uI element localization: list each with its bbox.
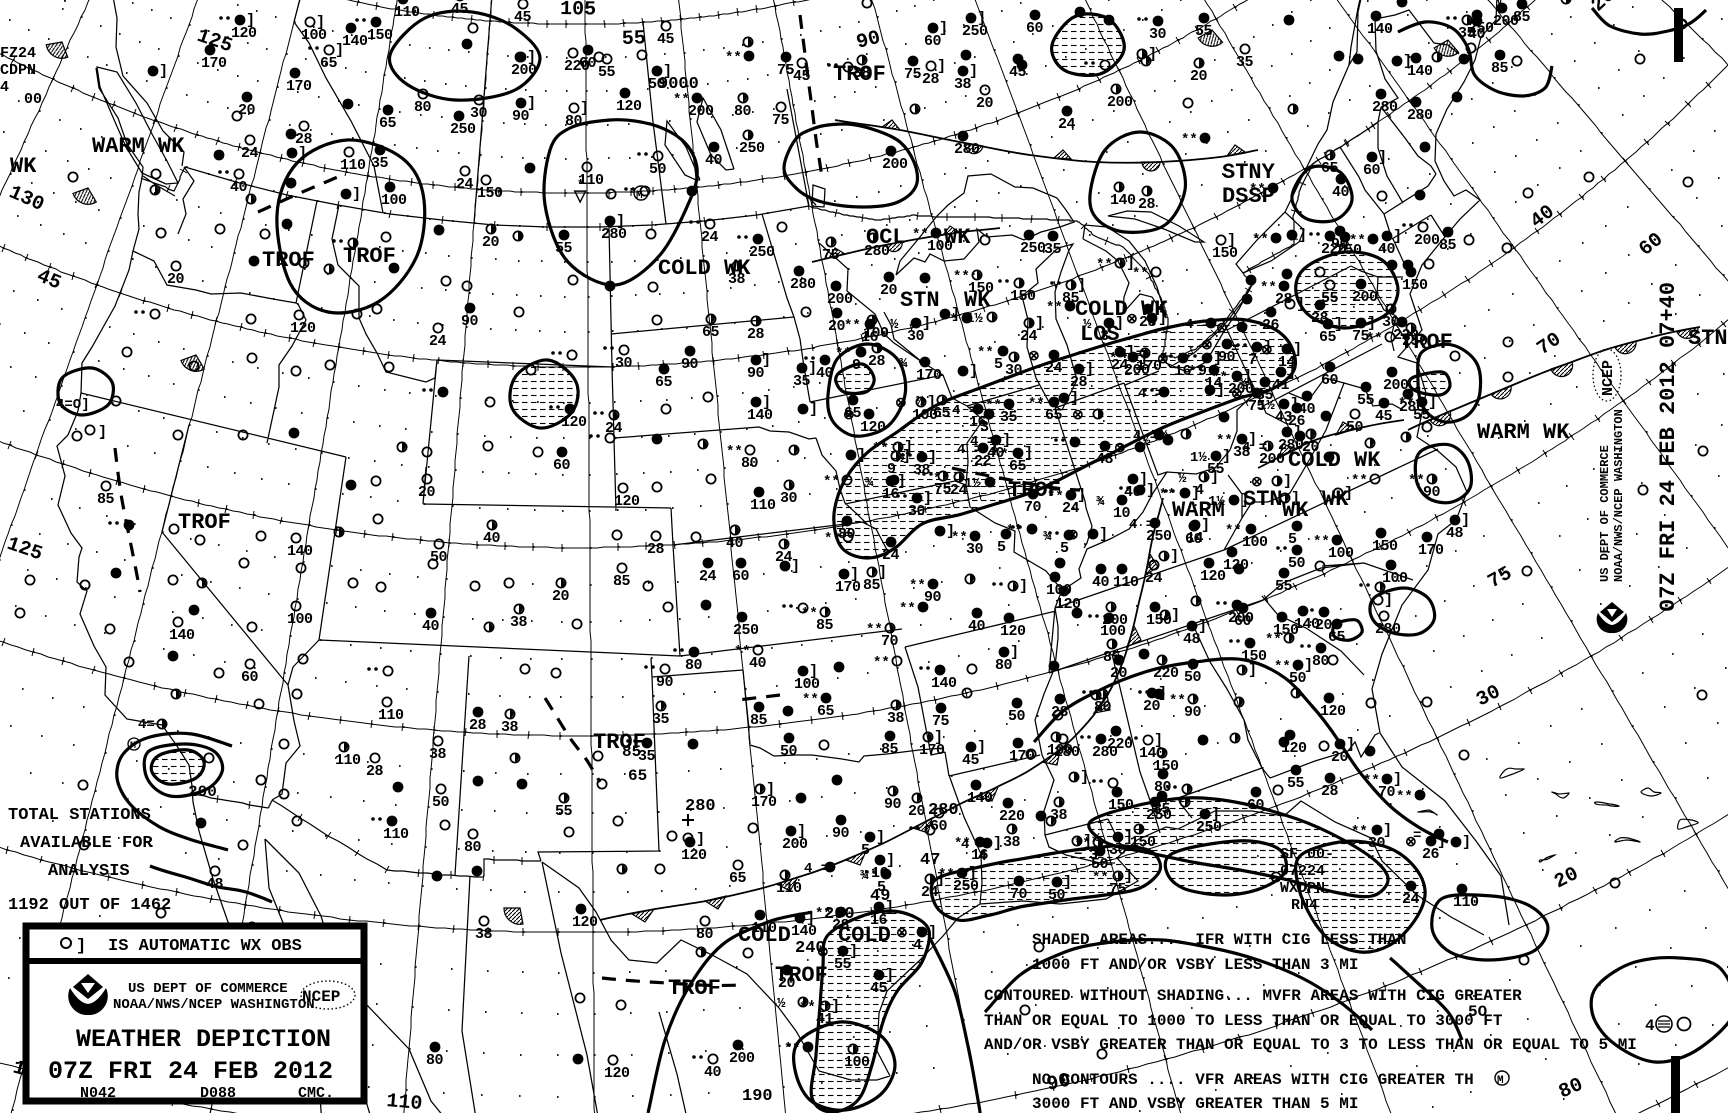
svg-text:80: 80 bbox=[734, 103, 752, 120]
svg-text:COLD WK: COLD WK bbox=[1288, 448, 1381, 473]
svg-text:]: ] bbox=[1293, 341, 1302, 358]
svg-text:**: ** bbox=[899, 601, 916, 617]
svg-text:50: 50 bbox=[1008, 708, 1026, 725]
svg-text:**: ** bbox=[938, 867, 955, 883]
svg-text:]: ] bbox=[1198, 618, 1207, 635]
svg-text:10: 10 bbox=[1113, 505, 1131, 522]
svg-text:85: 85 bbox=[1103, 649, 1121, 666]
svg-text:250: 250 bbox=[749, 244, 775, 261]
svg-text:4=O]: 4=O] bbox=[56, 397, 90, 413]
svg-text:100: 100 bbox=[1242, 534, 1268, 551]
svg-text:65: 65 bbox=[655, 374, 673, 391]
svg-text:]: ] bbox=[939, 20, 948, 37]
svg-text:⊗: ⊗ bbox=[1157, 352, 1169, 368]
svg-text:85: 85 bbox=[881, 741, 899, 758]
svg-text:]: ] bbox=[1461, 512, 1470, 529]
svg-text:105: 105 bbox=[560, 0, 596, 22]
svg-text:¾: ¾ bbox=[865, 475, 874, 491]
svg-text:65: 65 bbox=[933, 405, 951, 422]
svg-text:65: 65 bbox=[1045, 407, 1063, 424]
svg-text:WK: WK bbox=[1282, 498, 1309, 523]
svg-text:140: 140 bbox=[967, 790, 993, 807]
svg-text:75: 75 bbox=[777, 62, 795, 79]
svg-text:]: ] bbox=[1296, 296, 1305, 313]
svg-text:70: 70 bbox=[881, 633, 899, 650]
svg-text:]: ] bbox=[98, 424, 107, 441]
svg-text:140: 140 bbox=[287, 543, 313, 560]
svg-text:45: 45 bbox=[451, 1, 469, 18]
svg-text:AND/OR VSBY GREATER THAN OR EQ: AND/OR VSBY GREATER THAN OR EQUAL TO 3 T… bbox=[984, 1036, 1637, 1054]
svg-text:65: 65 bbox=[628, 767, 647, 785]
svg-text:90: 90 bbox=[1423, 484, 1441, 501]
svg-text:50: 50 bbox=[430, 549, 448, 566]
svg-text:55: 55 bbox=[555, 803, 573, 820]
svg-text:120: 120 bbox=[1000, 623, 1026, 640]
svg-text:**: ** bbox=[802, 692, 819, 708]
svg-text:100: 100 bbox=[1382, 570, 1408, 587]
svg-text:140: 140 bbox=[931, 675, 957, 692]
svg-text:24: 24 bbox=[701, 229, 719, 246]
svg-text:100: 100 bbox=[863, 325, 889, 342]
svg-text:150: 150 bbox=[1130, 834, 1156, 851]
svg-text:**: ** bbox=[1396, 789, 1413, 805]
svg-text:TROF: TROF bbox=[1400, 330, 1453, 355]
svg-text:50: 50 bbox=[1346, 419, 1364, 436]
svg-text:]: ] bbox=[526, 0, 535, 2]
svg-text:]: ] bbox=[806, 910, 815, 927]
svg-text:]: ] bbox=[857, 447, 866, 464]
svg-text:90: 90 bbox=[1218, 349, 1236, 366]
svg-text:NOAA/NWS/NCEP WASHINGTON: NOAA/NWS/NCEP WASHINGTON bbox=[113, 997, 315, 1013]
svg-text:75: 75 bbox=[932, 713, 950, 730]
svg-text:120: 120 bbox=[1320, 703, 1346, 720]
svg-text:75: 75 bbox=[904, 66, 922, 83]
svg-text:]: ] bbox=[766, 781, 775, 798]
svg-text:**: ** bbox=[1363, 773, 1380, 789]
svg-text:90: 90 bbox=[656, 674, 674, 691]
svg-text:30: 30 bbox=[1149, 26, 1167, 43]
svg-text:**: ** bbox=[873, 655, 890, 671]
svg-text:280: 280 bbox=[954, 141, 980, 158]
svg-text:65: 65 bbox=[702, 324, 720, 341]
svg-text:40: 40 bbox=[749, 655, 767, 672]
svg-text:TROF: TROF bbox=[668, 976, 721, 1001]
svg-text:20: 20 bbox=[238, 102, 256, 119]
svg-text:5: 5 bbox=[994, 356, 1003, 373]
svg-text:24: 24 bbox=[1145, 570, 1163, 587]
svg-text:80: 80 bbox=[696, 926, 714, 943]
svg-text:COLD: COLD bbox=[838, 923, 891, 948]
svg-text:TROF: TROF bbox=[262, 248, 315, 273]
svg-text:120: 120 bbox=[1055, 596, 1081, 613]
svg-text:]: ] bbox=[969, 363, 978, 380]
svg-text:55: 55 bbox=[1275, 578, 1293, 595]
svg-text:7: 7 bbox=[1248, 352, 1257, 369]
svg-text:TROF: TROF bbox=[833, 62, 886, 87]
svg-text:250: 250 bbox=[739, 140, 765, 157]
svg-text:9000: 9000 bbox=[658, 75, 699, 94]
svg-text:¾: ¾ bbox=[1096, 494, 1105, 510]
svg-text:50: 50 bbox=[1184, 669, 1202, 686]
svg-text:½: ½ bbox=[1178, 471, 1187, 487]
svg-text:170: 170 bbox=[1418, 542, 1444, 559]
svg-text:75: 75 bbox=[772, 112, 790, 129]
svg-text:]: ] bbox=[1170, 548, 1179, 565]
svg-text:]: ] bbox=[831, 998, 840, 1015]
svg-text:]: ] bbox=[1346, 736, 1355, 753]
svg-text:140: 140 bbox=[1367, 21, 1393, 38]
svg-text:]: ] bbox=[850, 566, 859, 583]
svg-text:D088: D088 bbox=[200, 1085, 236, 1102]
svg-text:]: ] bbox=[1384, 592, 1393, 609]
svg-text:45: 45 bbox=[793, 68, 811, 85]
svg-text:**: ** bbox=[866, 622, 883, 638]
svg-text:FZ24: FZ24 bbox=[0, 45, 36, 62]
svg-text:30: 30 bbox=[780, 490, 798, 507]
svg-text:**: ** bbox=[725, 50, 742, 66]
svg-text:90: 90 bbox=[832, 825, 850, 842]
svg-text:85: 85 bbox=[816, 617, 834, 634]
svg-text:CMC.: CMC. bbox=[298, 1085, 334, 1102]
svg-text:4 =: 4 = bbox=[1129, 517, 1154, 533]
svg-text:250: 250 bbox=[1336, 242, 1362, 259]
svg-text:]: ] bbox=[1290, 396, 1299, 413]
svg-text:5: 5 bbox=[861, 842, 870, 859]
svg-text:]: ] bbox=[1139, 349, 1148, 366]
svg-text:40: 40 bbox=[1298, 401, 1316, 418]
svg-text:]: ] bbox=[809, 663, 818, 680]
svg-text:]: ] bbox=[791, 558, 800, 575]
svg-text:**: ** bbox=[801, 606, 818, 622]
svg-text:LOS: LOS bbox=[1080, 322, 1120, 347]
svg-text:140: 140 bbox=[169, 627, 195, 644]
svg-text:80: 80 bbox=[1094, 699, 1112, 716]
svg-text:NOAA/NWS/NCEP WASHINGTON: NOAA/NWS/NCEP WASHINGTON bbox=[1612, 409, 1626, 582]
svg-text:4 =: 4 = bbox=[1138, 386, 1163, 402]
svg-text:250: 250 bbox=[733, 622, 759, 639]
svg-text:110: 110 bbox=[378, 707, 404, 724]
svg-text:220: 220 bbox=[999, 808, 1025, 825]
svg-text:110: 110 bbox=[1453, 894, 1479, 911]
svg-text:**: ** bbox=[673, 92, 690, 108]
svg-text:**: ** bbox=[1109, 351, 1126, 367]
svg-text:170: 170 bbox=[1009, 748, 1035, 765]
svg-text:THAN OR EQUAL TO 1000 TO LESS: THAN OR EQUAL TO 1000 TO LESS THAN OR EQ… bbox=[984, 1012, 1503, 1030]
svg-text:]: ] bbox=[809, 401, 818, 418]
svg-text:]: ] bbox=[1154, 732, 1163, 749]
svg-text:24: 24 bbox=[456, 176, 474, 193]
svg-text:120: 120 bbox=[616, 98, 642, 115]
svg-text:4 =: 4 = bbox=[961, 837, 986, 853]
svg-text:**: ** bbox=[1096, 257, 1113, 273]
svg-text:NO CONTOURS .... VFR AREAS WIT: NO CONTOURS .... VFR AREAS WITH CIG GREA… bbox=[1032, 1071, 1474, 1089]
svg-text:110: 110 bbox=[750, 497, 776, 514]
svg-text:200: 200 bbox=[688, 103, 714, 120]
svg-text:50: 50 bbox=[1091, 856, 1109, 873]
svg-text:]: ] bbox=[1298, 227, 1307, 244]
svg-text:40: 40 bbox=[1332, 184, 1350, 201]
svg-text:]: ] bbox=[922, 315, 931, 332]
svg-text:48: 48 bbox=[206, 876, 224, 893]
svg-text:**: ** bbox=[1216, 433, 1233, 449]
svg-text:**: ** bbox=[726, 444, 743, 460]
svg-text:24: 24 bbox=[699, 568, 717, 585]
svg-text:]: ] bbox=[1227, 232, 1236, 249]
svg-text:24: 24 bbox=[241, 145, 259, 162]
svg-text:4 =: 4 = bbox=[970, 434, 995, 450]
svg-text:200: 200 bbox=[729, 1050, 755, 1067]
svg-text:150: 150 bbox=[1241, 648, 1267, 665]
svg-text:40: 40 bbox=[1092, 574, 1110, 591]
svg-text:]: ] bbox=[1139, 471, 1148, 488]
svg-text:65: 65 bbox=[817, 703, 835, 720]
svg-text:]: ] bbox=[977, 739, 986, 756]
svg-text:90: 90 bbox=[681, 356, 699, 373]
svg-text:½: ½ bbox=[1142, 434, 1151, 450]
svg-text:85: 85 bbox=[1513, 9, 1531, 26]
svg-text:**: ** bbox=[909, 578, 926, 594]
svg-text:]: ] bbox=[76, 937, 86, 956]
svg-text:280: 280 bbox=[1407, 107, 1433, 124]
svg-text:]: ] bbox=[876, 829, 885, 846]
svg-text:80: 80 bbox=[426, 1052, 444, 1069]
svg-text:]: ] bbox=[934, 729, 943, 746]
svg-text:WARM WK: WARM WK bbox=[92, 134, 185, 159]
svg-text:4: 4 bbox=[1645, 1017, 1655, 1035]
svg-text:]: ] bbox=[886, 852, 895, 869]
svg-text:45: 45 bbox=[514, 9, 532, 26]
svg-text:200: 200 bbox=[1228, 610, 1254, 627]
svg-text:1192 OUT OF 1462: 1192 OUT OF 1462 bbox=[8, 896, 171, 915]
svg-text:]: ] bbox=[1024, 445, 1033, 462]
svg-text:]: ] bbox=[1393, 771, 1402, 788]
svg-text:38: 38 bbox=[1003, 834, 1021, 851]
svg-text:24: 24 bbox=[882, 547, 900, 564]
svg-text:150: 150 bbox=[367, 27, 393, 44]
svg-text:170: 170 bbox=[916, 367, 942, 384]
svg-text:100: 100 bbox=[844, 1054, 870, 1071]
svg-text:30: 30 bbox=[470, 105, 488, 122]
svg-text:US DEPT OF COMMERCE: US DEPT OF COMMERCE bbox=[1598, 445, 1612, 582]
svg-text:14: 14 bbox=[1205, 375, 1223, 392]
svg-text:**: ** bbox=[1351, 473, 1368, 489]
svg-text:200: 200 bbox=[511, 62, 537, 79]
svg-text:150: 150 bbox=[1372, 538, 1398, 555]
svg-text:35: 35 bbox=[1236, 54, 1254, 71]
svg-text:26: 26 bbox=[1262, 317, 1280, 334]
svg-text:]: ] bbox=[1085, 361, 1094, 378]
svg-text:]: ] bbox=[937, 58, 946, 75]
svg-text:]: ] bbox=[316, 14, 325, 31]
svg-text:35: 35 bbox=[371, 155, 389, 172]
svg-text:⊗: ⊗ bbox=[1114, 441, 1126, 457]
svg-text:**: ** bbox=[1351, 824, 1368, 840]
svg-text:N042: N042 bbox=[80, 1085, 116, 1102]
svg-text:24: 24 bbox=[429, 333, 447, 350]
svg-text:]: ] bbox=[1019, 578, 1028, 595]
svg-text:70: 70 bbox=[1010, 886, 1028, 903]
svg-text:]: ] bbox=[923, 490, 932, 507]
svg-text:20: 20 bbox=[976, 95, 994, 112]
svg-text:250: 250 bbox=[1020, 240, 1046, 257]
svg-text:]: ] bbox=[527, 95, 536, 112]
svg-text:50: 50 bbox=[1288, 555, 1306, 572]
svg-text:60: 60 bbox=[1185, 531, 1203, 548]
svg-text:DSSP: DSSP bbox=[1222, 184, 1275, 209]
svg-text:90: 90 bbox=[461, 313, 479, 330]
svg-text:20: 20 bbox=[1190, 68, 1208, 85]
svg-text:1½: 1½ bbox=[1190, 450, 1207, 466]
svg-text:60: 60 bbox=[732, 568, 750, 585]
svg-text:=: = bbox=[1413, 828, 1421, 844]
svg-text:=: = bbox=[1074, 845, 1082, 861]
svg-text:SHADED AREAS.... IFR WITH CIG: SHADED AREAS.... IFR WITH CIG LESS THAN bbox=[1032, 931, 1406, 949]
svg-text:RN4: RN4 bbox=[1291, 897, 1318, 914]
svg-text:]: ] bbox=[1222, 448, 1231, 465]
svg-text:]: ] bbox=[1124, 868, 1133, 885]
svg-text:110: 110 bbox=[776, 880, 802, 897]
svg-text:**: ** bbox=[1181, 132, 1198, 148]
svg-text:120: 120 bbox=[614, 493, 640, 510]
svg-text:**: ** bbox=[823, 474, 840, 490]
svg-text:200: 200 bbox=[1102, 612, 1128, 629]
svg-text:110: 110 bbox=[335, 752, 361, 769]
svg-text:85: 85 bbox=[622, 743, 641, 761]
svg-text:**: ** bbox=[1366, 331, 1383, 347]
svg-text:TROF: TROF bbox=[1008, 478, 1061, 503]
svg-text:28: 28 bbox=[868, 353, 886, 370]
svg-text:]: ] bbox=[969, 63, 978, 80]
svg-text:]: ] bbox=[616, 213, 625, 230]
svg-text:110: 110 bbox=[394, 4, 420, 21]
svg-text:170: 170 bbox=[286, 78, 312, 95]
svg-text:WARM: WARM bbox=[1172, 498, 1225, 523]
svg-text:55: 55 bbox=[1287, 775, 1305, 792]
svg-text:55: 55 bbox=[1195, 23, 1213, 40]
svg-text:]: ] bbox=[762, 352, 771, 369]
svg-text:]: ] bbox=[1099, 526, 1108, 543]
svg-text:110: 110 bbox=[383, 826, 409, 843]
svg-text:50: 50 bbox=[780, 743, 798, 760]
svg-text:150: 150 bbox=[1108, 797, 1134, 814]
svg-text:]: ] bbox=[1077, 487, 1086, 504]
svg-text:280: 280 bbox=[928, 801, 959, 820]
svg-text:40: 40 bbox=[968, 618, 986, 635]
svg-text:80: 80 bbox=[741, 455, 759, 472]
svg-text:120: 120 bbox=[681, 847, 707, 864]
svg-text:28: 28 bbox=[1138, 196, 1156, 213]
svg-text:**: ** bbox=[951, 530, 968, 546]
svg-text:150: 150 bbox=[1010, 288, 1036, 305]
svg-text:24: 24 bbox=[1058, 116, 1076, 133]
svg-text:]: ] bbox=[797, 823, 806, 840]
svg-text:65: 65 bbox=[729, 870, 747, 887]
svg-text:30: 30 bbox=[1005, 362, 1023, 379]
svg-text:100: 100 bbox=[287, 611, 313, 628]
svg-text:190: 190 bbox=[742, 1087, 773, 1106]
svg-text:**: ** bbox=[1132, 266, 1149, 282]
svg-text:]: ] bbox=[1403, 53, 1412, 70]
svg-text:100: 100 bbox=[1328, 545, 1354, 562]
svg-text:½: ½ bbox=[916, 394, 925, 410]
svg-text:28: 28 bbox=[1051, 704, 1069, 721]
svg-text:]: ] bbox=[951, 306, 960, 323]
svg-text:55: 55 bbox=[621, 27, 646, 51]
svg-text:20: 20 bbox=[1315, 617, 1333, 634]
svg-text:¾: ¾ bbox=[1239, 376, 1248, 392]
svg-text:¾: ¾ bbox=[899, 356, 908, 372]
svg-text:90: 90 bbox=[884, 796, 902, 813]
svg-text:28: 28 bbox=[1275, 291, 1293, 308]
svg-text:30: 30 bbox=[615, 355, 633, 372]
svg-text:]: ] bbox=[335, 42, 344, 59]
svg-text:85: 85 bbox=[613, 573, 631, 590]
svg-text:40: 40 bbox=[230, 179, 248, 196]
svg-text:AVAILABLE FOR: AVAILABLE FOR bbox=[20, 834, 153, 853]
svg-text:1½: 1½ bbox=[964, 476, 981, 492]
svg-text:4: 4 bbox=[0, 79, 9, 96]
svg-text:4 =: 4 = bbox=[952, 403, 977, 419]
svg-text:40: 40 bbox=[705, 152, 723, 169]
svg-text:200: 200 bbox=[1107, 94, 1133, 111]
svg-text:28: 28 bbox=[1321, 783, 1339, 800]
svg-text:120: 120 bbox=[572, 914, 598, 931]
svg-text:47: 47 bbox=[920, 851, 940, 870]
svg-text:48: 48 bbox=[1096, 451, 1114, 468]
svg-text:28: 28 bbox=[1311, 310, 1329, 327]
svg-text:28: 28 bbox=[469, 717, 487, 734]
svg-text:COLD WK: COLD WK bbox=[658, 256, 751, 281]
svg-text:00: 00 bbox=[24, 91, 42, 108]
svg-text:200: 200 bbox=[1352, 289, 1378, 306]
svg-text:]: ] bbox=[1462, 834, 1471, 851]
svg-text:4 =: 4 = bbox=[804, 861, 829, 877]
svg-text:**: ** bbox=[835, 346, 852, 362]
svg-text:60: 60 bbox=[553, 457, 571, 474]
svg-text:38: 38 bbox=[887, 710, 905, 727]
svg-text:240: 240 bbox=[795, 939, 826, 958]
svg-text:38: 38 bbox=[501, 719, 519, 736]
svg-text:4=: 4= bbox=[138, 717, 155, 733]
svg-text:110: 110 bbox=[1113, 574, 1139, 591]
svg-text:STN: STN bbox=[900, 288, 940, 313]
svg-text:200: 200 bbox=[827, 291, 853, 308]
svg-text:WEATHER DEPICTION: WEATHER DEPICTION bbox=[76, 1025, 331, 1054]
svg-text:COLD WK: COLD WK bbox=[1075, 297, 1168, 322]
svg-text:200: 200 bbox=[882, 156, 908, 173]
svg-text:]: ] bbox=[1428, 394, 1437, 411]
svg-text:]: ] bbox=[993, 835, 1002, 852]
svg-text:]: ] bbox=[1393, 228, 1402, 245]
svg-text:TROF: TROF bbox=[775, 963, 828, 988]
svg-text:⊗: ⊗ bbox=[895, 396, 907, 412]
svg-text:35: 35 bbox=[1458, 25, 1476, 42]
svg-text:]: ] bbox=[878, 564, 887, 581]
svg-text:¾: ¾ bbox=[1092, 831, 1101, 847]
svg-text:24: 24 bbox=[1402, 891, 1420, 908]
svg-text:60: 60 bbox=[930, 818, 948, 835]
svg-text:24: 24 bbox=[1045, 360, 1063, 377]
svg-text:**: ** bbox=[1260, 280, 1277, 296]
svg-text:170: 170 bbox=[201, 55, 227, 72]
svg-text:½: ½ bbox=[777, 996, 786, 1012]
svg-text:38: 38 bbox=[475, 926, 493, 943]
svg-text:280: 280 bbox=[1375, 621, 1401, 638]
svg-text:]: ] bbox=[902, 448, 911, 465]
svg-text:⊗: ⊗ bbox=[1216, 321, 1228, 337]
svg-text:ANALYSIS: ANALYSIS bbox=[48, 862, 130, 881]
svg-text:⊗: ⊗ bbox=[1067, 528, 1079, 544]
